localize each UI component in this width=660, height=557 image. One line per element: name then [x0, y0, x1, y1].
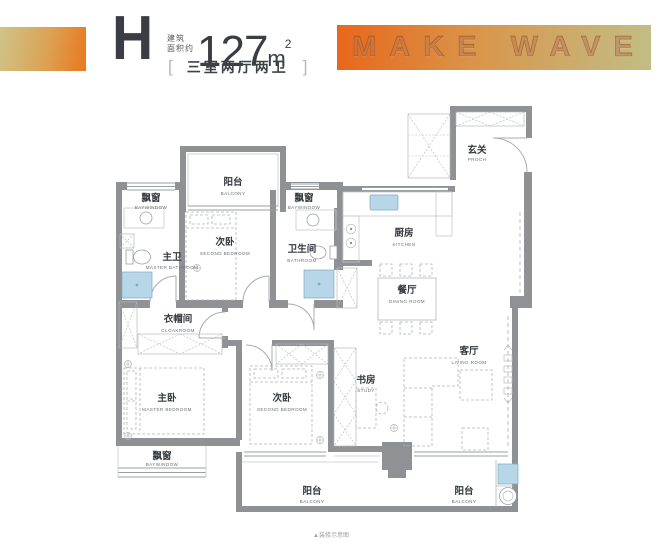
side-table [462, 428, 488, 450]
label-balcony-br-zh: 阳台 [454, 485, 474, 497]
label-balcony-bl-zh: 阳台 [302, 485, 322, 497]
bed-second-bedroom-bottom [250, 366, 312, 444]
label-baywindow-tm-en: BAYWINDOW [288, 205, 321, 210]
label-master-bath-en: MASTER BATHROOM [146, 265, 199, 270]
label-baywindow-bottom-zh: 飘窗 [151, 450, 172, 462]
label-porch-en: PROCH [468, 157, 487, 162]
study-closet-column [334, 348, 356, 446]
label-dining-zh: 餐厅 [396, 284, 417, 296]
label-bedroom2-bottom-zh: 次卧 [272, 392, 292, 404]
wardrobe-strip [138, 334, 222, 354]
toilet-icon [330, 246, 337, 259]
label-balcony-top-en: BALCONY [221, 191, 246, 196]
study-desk [356, 388, 388, 428]
label-porch-zh: 玄关 [467, 144, 487, 156]
sofa [404, 358, 458, 446]
label-kitchen-zh: 厨房 [394, 227, 413, 239]
coffee-table [460, 370, 492, 400]
walls [116, 106, 532, 512]
floorplan-page: H 建筑 面积约 127m2 [ 三室两厅两卫 ] MAKE WAVE [0, 0, 660, 557]
label-baywindow-tl-zh: 飘窗 [140, 192, 161, 204]
label-bathroom-zh: 卫生间 [288, 243, 317, 255]
washing-machine-icon [500, 488, 517, 505]
label-cloakroom-zh: 衣帽间 [164, 313, 193, 325]
stove-icon [346, 224, 356, 248]
bedroom-wardrobe [276, 344, 328, 364]
label-master-bedroom-en: MASTER BEDROOM [142, 407, 192, 412]
balcony-fixtures [496, 460, 518, 506]
label-balcony-br-en: BALCONY [452, 499, 477, 504]
label-balcony-bl-en: BALCONY [300, 499, 325, 504]
label-bedroom2-bottom-en: SECOND BEDROOM [257, 407, 307, 412]
label-bathroom-en: BATHROOM [287, 258, 316, 263]
label-balcony-top-zh: 阳台 [223, 176, 243, 188]
floor-plan-svg: 玄关 PROCH 厨房 KITCHEN 餐厅 DINING ROOM 客厅 LI… [0, 0, 660, 557]
label-kitchen-en: KITCHEN [393, 242, 416, 247]
label-living-en: LIVING ROOM [451, 360, 486, 365]
label-living-zh: 客厅 [458, 345, 479, 357]
label-master-bath-zh: 主卫 [162, 251, 182, 263]
bed-second-bedroom-top [186, 212, 236, 300]
label-bedroom2-top-en: SECOND BEDROOM [200, 251, 250, 256]
label-master-bedroom-zh: 主卧 [157, 392, 177, 404]
label-baywindow-tl-en: BAYWINDOW [135, 205, 168, 210]
label-study-en: STUDY [357, 388, 375, 393]
footnote: ▲装修示意图 [313, 531, 349, 539]
label-study-zh: 书房 [356, 374, 375, 386]
label-bedroom2-top-zh: 次卧 [215, 236, 235, 248]
kitchen-sink [370, 195, 398, 210]
room-labels: 玄关 PROCH 厨房 KITCHEN 餐厅 DINING ROOM 客厅 LI… [135, 144, 487, 504]
fridge-cabinet [408, 114, 450, 178]
shoe-cabinet [456, 112, 524, 126]
label-dining-en: DINING ROOM [389, 299, 425, 304]
label-baywindow-tm-zh: 飘窗 [293, 192, 314, 204]
label-cloakroom-en: CLOAKROOM [161, 328, 194, 333]
laundry-sink [498, 464, 518, 484]
toilet-icon [126, 250, 133, 264]
label-baywindow-bottom-en: BAYWINDOW [146, 462, 179, 467]
